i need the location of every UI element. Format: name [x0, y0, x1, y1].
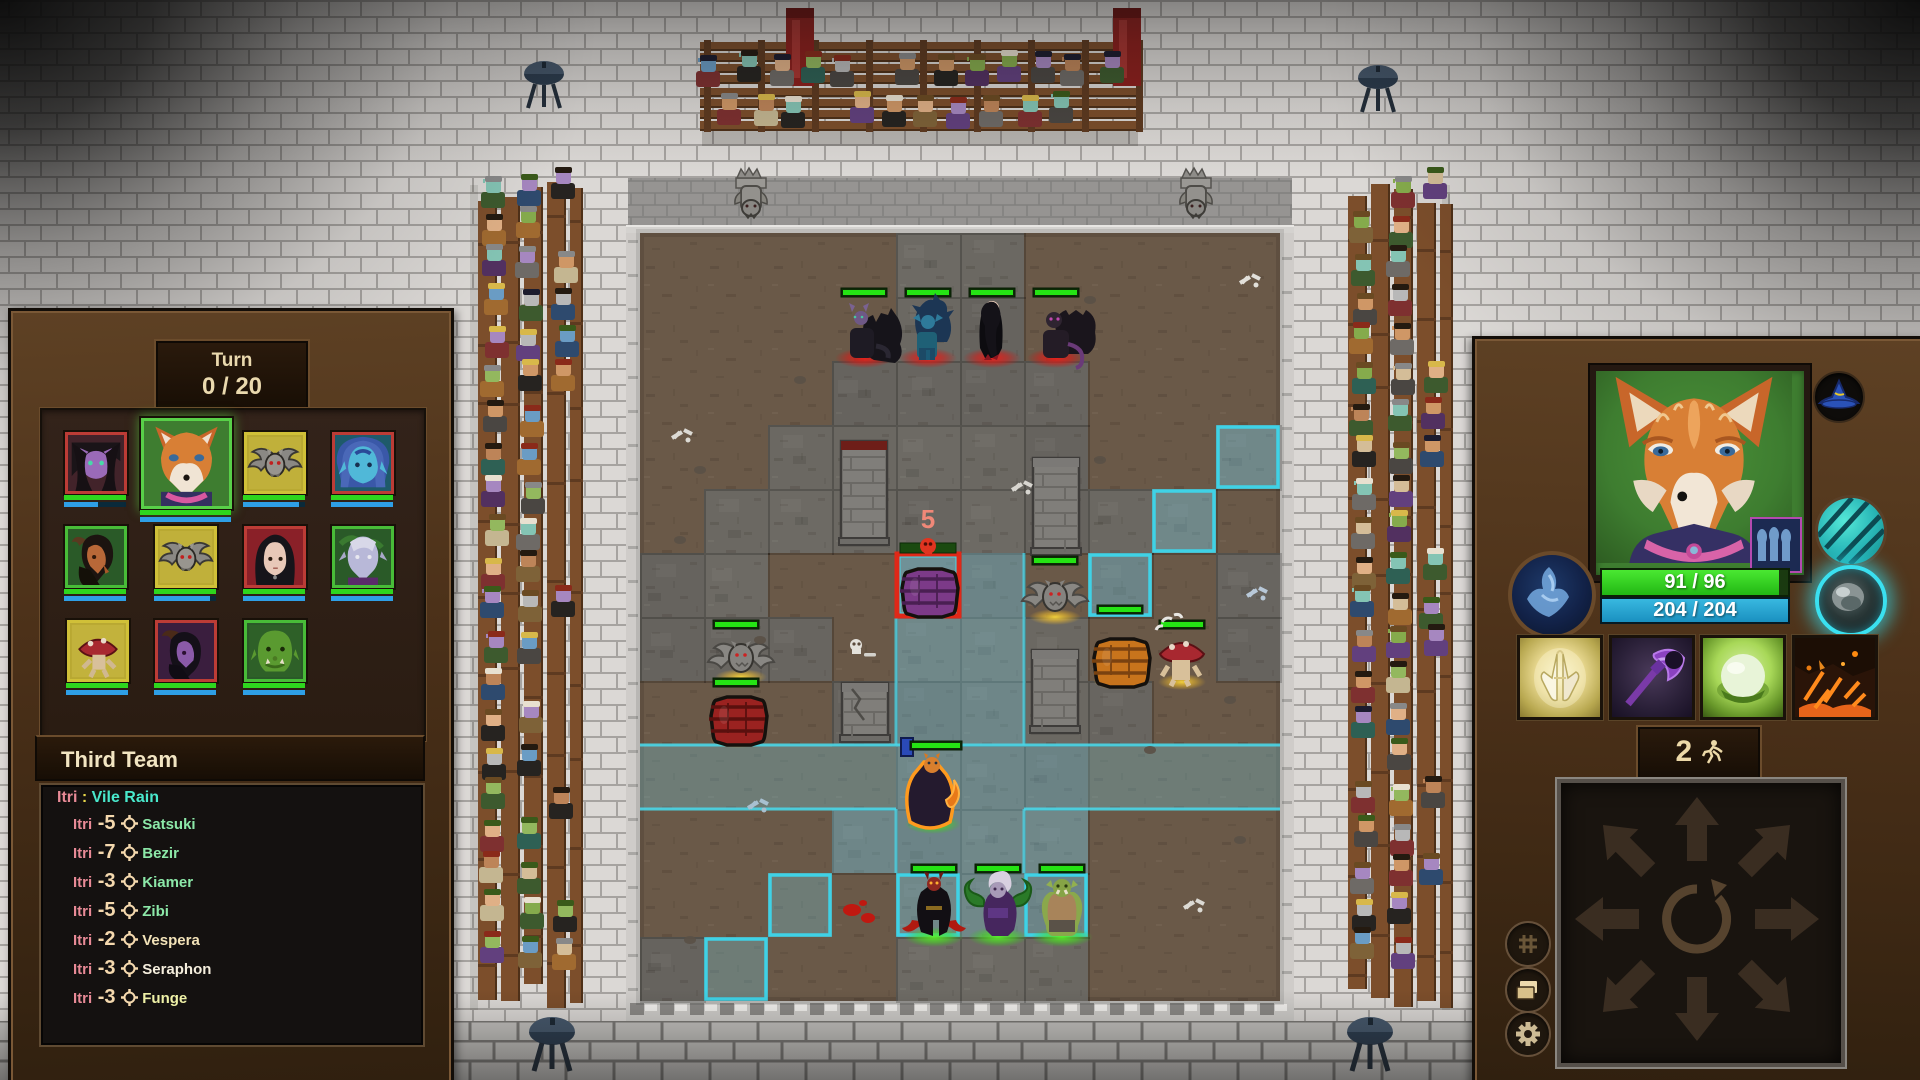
svg-text:5: 5 — [921, 504, 935, 534]
